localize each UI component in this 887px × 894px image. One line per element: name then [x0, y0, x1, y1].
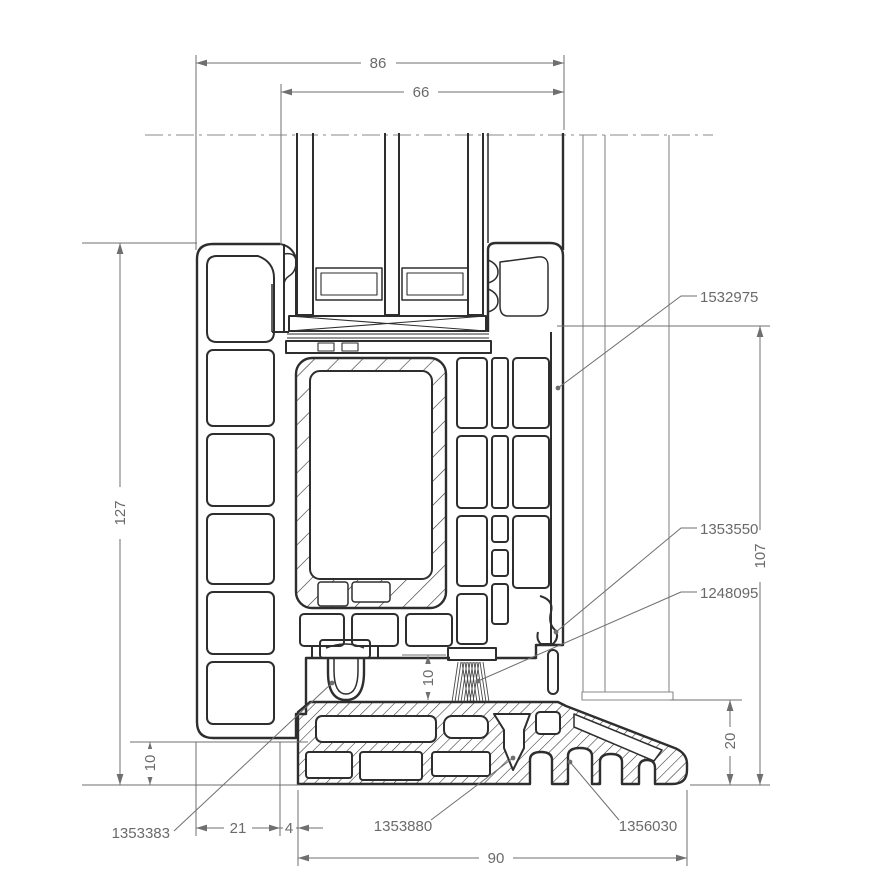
- chamber: [492, 436, 508, 508]
- dimension-4: 4: [280, 790, 323, 866]
- dimension-86-value: 86: [370, 55, 387, 72]
- chamber: [300, 614, 344, 646]
- center-gasket: [537, 596, 557, 644]
- dome-holder-arc: [326, 644, 364, 648]
- dimension-10-bottom-left: 10: [130, 742, 308, 785]
- sill-support-block: [582, 692, 673, 700]
- brush-holder: [448, 648, 496, 660]
- dimension-107-value: 107: [752, 543, 769, 568]
- sill-chamber: [316, 716, 436, 742]
- chamber: [207, 350, 274, 426]
- dimension-10-brush: 10: [402, 655, 446, 700]
- part-label-1353550-text: 1353550: [700, 521, 758, 538]
- dome-wing: [372, 646, 378, 658]
- part-label-1353383-text: 1353383: [112, 825, 170, 842]
- sill-chamber: [444, 716, 488, 738]
- part-label-1356030-text: 1356030: [619, 818, 677, 835]
- sill-profile: [298, 702, 687, 784]
- drawing-canvas: 86 66 127 10 10: [0, 0, 887, 894]
- technical-drawing-svg: 86 66 127 10 10: [0, 0, 887, 894]
- dome-wing: [312, 646, 318, 658]
- glass-pane-1: [297, 133, 313, 315]
- sill-chamber: [536, 712, 560, 734]
- dimension-21-value: 21: [230, 820, 247, 837]
- dimension-20-value: 20: [722, 733, 739, 750]
- brush-seal: [448, 648, 496, 702]
- sill-chamber: [432, 752, 490, 776]
- glazing-seal-left: [284, 254, 296, 288]
- chamber: [457, 358, 487, 428]
- chamber: [492, 550, 508, 576]
- dimension-4-value: 4: [285, 820, 293, 837]
- sill-chamber: [360, 752, 422, 780]
- dome-gasket: [312, 640, 378, 700]
- dimension-66-value: 66: [413, 84, 430, 101]
- dimension-66: 66: [281, 84, 564, 245]
- glass-pane-2: [385, 133, 399, 315]
- spacer-bar-2-inner: [407, 273, 463, 295]
- chamber: [207, 662, 274, 724]
- chamber: [492, 358, 508, 428]
- bridge-detail: [342, 343, 358, 351]
- dimension-86: 86: [196, 55, 564, 250]
- bead-clip: [488, 289, 498, 312]
- chamber: [207, 434, 274, 506]
- part-label-1353550: 1353550: [554, 521, 759, 634]
- chamber: [207, 592, 274, 654]
- dimension-10-brush-value: 10: [420, 670, 437, 687]
- chamber: [492, 516, 508, 542]
- dimension-90-value: 90: [488, 850, 505, 867]
- part-label-1353880-text: 1353880: [374, 818, 432, 835]
- part-label-1532975-text: 1532975: [700, 289, 758, 306]
- part-label-1248095-text: 1248095: [700, 585, 758, 602]
- bead-clip: [488, 260, 498, 283]
- chamber: [457, 516, 487, 586]
- sash-profile: [197, 243, 563, 738]
- dimension-21: 21: [196, 742, 280, 837]
- sill-chamber: [306, 752, 352, 778]
- glazing-bridge: [286, 341, 491, 353]
- chamber: [352, 614, 398, 646]
- chamber: [406, 614, 452, 646]
- reinforcement-chamber-inner: [310, 371, 432, 579]
- chamber: [492, 584, 508, 624]
- dimension-10-bottom-value: 10: [142, 755, 159, 772]
- chamber: [207, 514, 274, 584]
- chamber-small: [352, 582, 390, 602]
- sash-right-contour: [497, 332, 563, 658]
- chamber: [457, 594, 487, 644]
- outer-lip: [548, 650, 558, 694]
- dimension-127-value: 127: [112, 500, 129, 525]
- chamber: [457, 436, 487, 508]
- dome-holder: [320, 640, 370, 658]
- spacer-bar-1-inner: [321, 273, 377, 295]
- brush-bristles: [452, 662, 489, 702]
- chamber: [513, 358, 549, 428]
- chamber: [513, 516, 549, 588]
- bead-chamber: [500, 257, 548, 316]
- dome-inner: [334, 658, 358, 694]
- chamber: [207, 256, 274, 342]
- chamber-small: [318, 582, 348, 606]
- glass-pane-3: [468, 133, 483, 315]
- bridge-detail: [318, 343, 334, 351]
- part-label-1532975: 1532975: [556, 289, 759, 390]
- part-label-1248095: 1248095: [476, 585, 759, 683]
- chamber: [513, 436, 549, 508]
